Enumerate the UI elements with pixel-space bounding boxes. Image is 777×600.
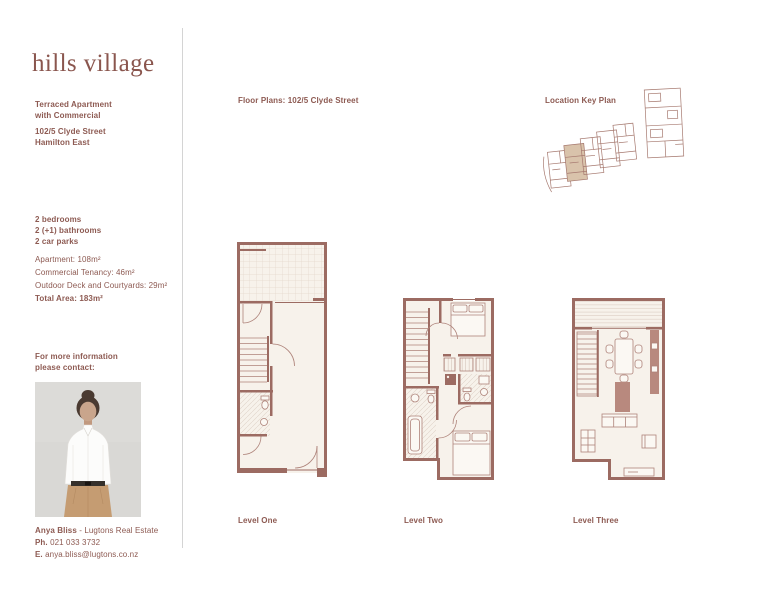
floorplan-level-one: [237, 242, 327, 477]
terrace-row: [540, 123, 639, 192]
agent-email-line: E. anya.bliss@lugtons.co.nz: [35, 549, 158, 561]
content-divider: [182, 28, 183, 548]
agent-name-line: Anya Bliss - Lugtons Real Estate: [35, 525, 158, 537]
spec-list: 2 bedrooms 2 (+1) bathrooms 2 car parks: [35, 214, 101, 247]
spec-carparks: 2 car parks: [35, 236, 101, 247]
area-total: Total Area: 183m²: [35, 292, 167, 305]
cabinet: [581, 430, 595, 452]
level-two-label: Level Two: [404, 516, 443, 525]
level-three-label: Level Three: [573, 516, 619, 525]
property-type: Terraced Apartment with Commercial: [35, 99, 112, 121]
spec-bathrooms: 2 (+1) bathrooms: [35, 225, 101, 236]
agent-email: anya.bliss@lugtons.co.nz: [45, 550, 138, 559]
floor-plans-title: Floor Plans: 102/5 Clyde Street: [238, 95, 358, 106]
sofa: [602, 414, 637, 427]
main-bathroom: [406, 386, 439, 458]
agent-phone: 021 033 3732: [50, 538, 100, 547]
level-one-label: Level One: [238, 516, 277, 525]
agent-name: Anya Bliss: [35, 526, 77, 535]
brand-logo: hills village: [32, 50, 155, 78]
bathroom: [240, 390, 273, 437]
agent-company: - Lugtons Real Estate: [79, 526, 158, 535]
bathtub: [408, 416, 422, 454]
property-address: 102/5 Clyde Street Hamilton East: [35, 126, 106, 148]
area-list: Apartment: 108m² Commercial Tenancy: 46m…: [35, 253, 167, 305]
area-commercial: Commercial Tenancy: 46m²: [35, 266, 167, 279]
armchair: [642, 435, 656, 448]
garage-grid: [240, 245, 324, 301]
location-key-title: Location Key Plan: [545, 95, 616, 106]
phone-label: Ph.: [35, 538, 48, 547]
floorplan-level-two: [403, 298, 494, 482]
bedroom-two-bed: [453, 431, 490, 475]
deck: [575, 301, 662, 330]
wardrobes: [444, 358, 490, 371]
kitchen-island: [615, 382, 630, 412]
end-block: [644, 88, 684, 158]
contact-prompt: For more information please contact:: [35, 351, 118, 373]
rear-porch: [624, 468, 654, 476]
area-apartment: Apartment: 108m²: [35, 253, 167, 266]
unit-2-highlighted: [564, 143, 588, 181]
agent-photo: [35, 382, 141, 517]
ensuite: [458, 374, 491, 405]
floorplan-level-three: [572, 298, 665, 482]
email-label: E.: [35, 550, 43, 559]
brochure-page: { "brand": { "logo_text": "hills village…: [0, 0, 777, 600]
agent-phone-line: Ph. 021 033 3732: [35, 537, 158, 549]
spec-bedrooms: 2 bedrooms: [35, 214, 101, 225]
agent-details: Anya Bliss - Lugtons Real Estate Ph. 021…: [35, 525, 158, 561]
kitchen-bench: [650, 330, 659, 394]
area-outdoor: Outdoor Deck and Courtyards: 29m²: [35, 279, 167, 292]
shower: [445, 374, 456, 385]
bedroom-one-bed: [451, 303, 485, 336]
